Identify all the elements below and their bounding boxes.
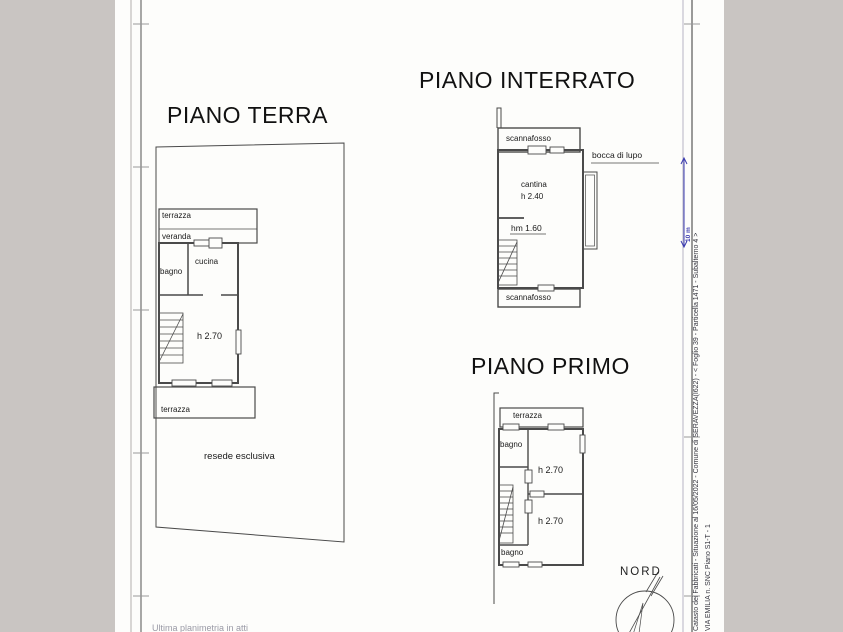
terra-label-terrazza-bottom: terrazza: [161, 406, 190, 414]
margin-address-text: VIA EMILIA n. SNC Piano S1-T - 1: [705, 524, 712, 631]
interrato-label-scannafosso-top: scannafosso: [506, 135, 551, 143]
terra-label-terrazza-top: terrazza: [162, 212, 191, 220]
primo-label-bagno-top: bagno: [500, 441, 522, 449]
primo-label-room1-height: h 2.70: [538, 466, 563, 475]
bocca-di-lupo-well: [583, 163, 659, 249]
terra-label-resede: resede esclusiva: [204, 452, 275, 462]
north-compass: [616, 572, 674, 632]
piano-terra-plan: [154, 143, 344, 542]
primo-label-room2-height: h 2.70: [538, 517, 563, 526]
terra-label-veranda: veranda: [162, 233, 191, 241]
north-label: NORD: [620, 566, 662, 578]
stairs: [499, 485, 513, 543]
terra-label-cucina: cucina: [195, 258, 218, 266]
cadastral-plan-page: PIANO TERRA PIANO INTERRATO PIANO PRIMO …: [0, 0, 843, 632]
primo-label-bagno-bottom: bagno: [501, 549, 523, 557]
interrato-label-cantina-height: h 2.40: [521, 193, 543, 201]
heading-piano-interrato: PIANO INTERRATO: [419, 67, 635, 94]
interrato-label-scannafosso-bottom: scannafosso: [506, 294, 551, 302]
interrato-label-cantina: cantina: [521, 181, 547, 189]
page-border-lines: [131, 0, 700, 632]
stairs: [498, 240, 517, 285]
stairs: [159, 313, 183, 363]
primo-label-terrazza: terrazza: [513, 412, 542, 420]
terra-label-bagno: bagno: [160, 268, 182, 276]
scale-dimension-label: 10 m: [686, 227, 693, 242]
floorplan-drawing: [0, 0, 843, 632]
terra-label-height: h 2.70: [197, 332, 222, 341]
interrato-label-bocca-di-lupo: bocca di lupo: [592, 151, 642, 160]
interrato-label-passage-height: hm 1.60: [511, 224, 542, 233]
footer-note: Ultima planimetria in atti: [152, 623, 248, 632]
heading-piano-terra: PIANO TERRA: [167, 102, 328, 129]
piano-primo-plan: [494, 393, 585, 604]
margin-catasto-text: Catasto dei Fabbricati - Situazione al 1…: [693, 233, 700, 631]
openings: [528, 146, 564, 291]
heading-piano-primo: PIANO PRIMO: [471, 353, 630, 380]
